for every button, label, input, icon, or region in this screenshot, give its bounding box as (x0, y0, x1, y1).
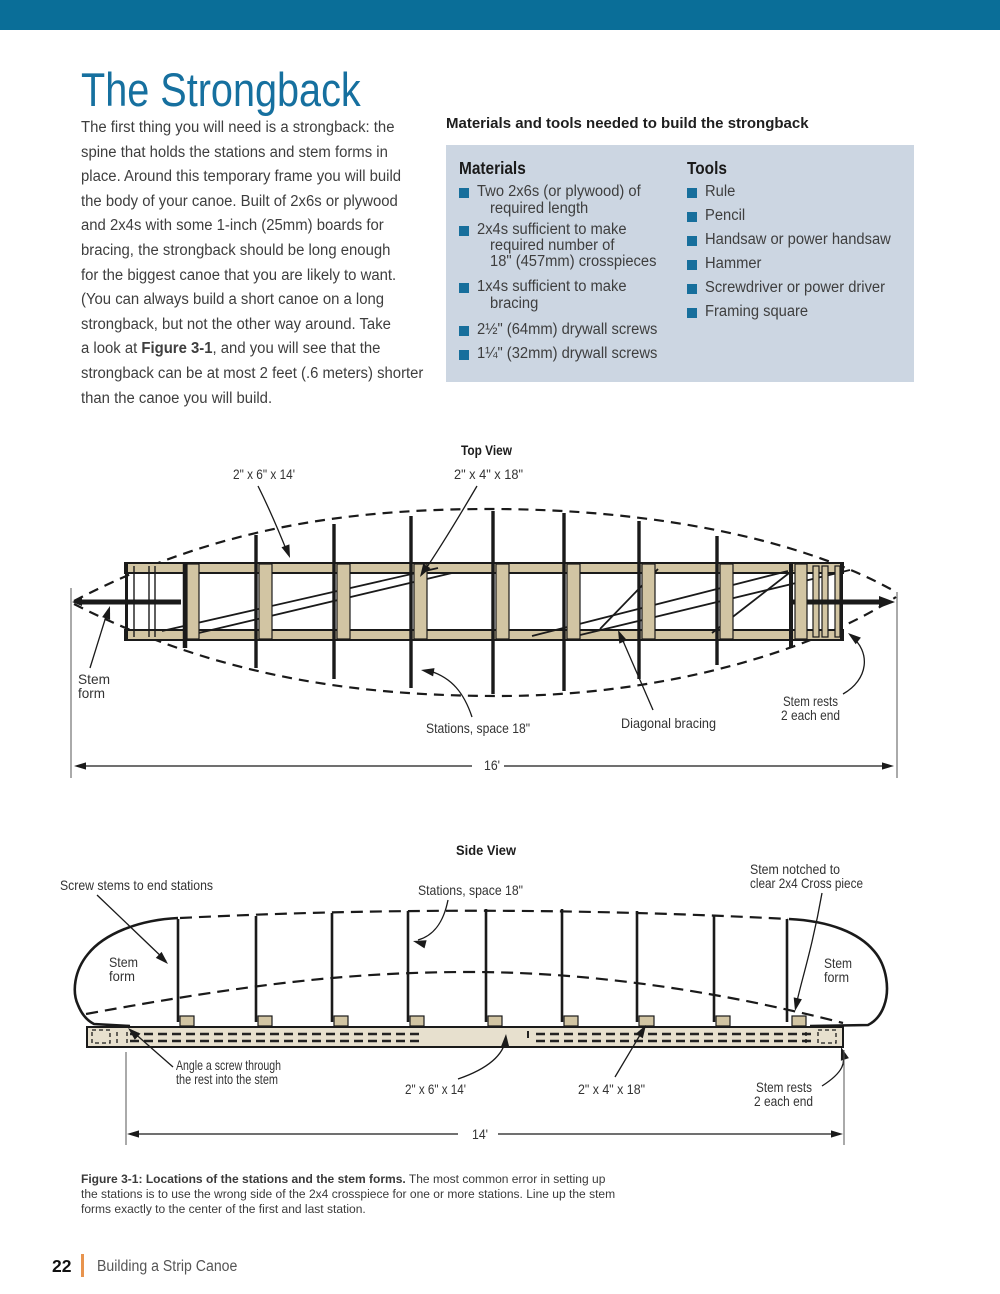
svg-text:form: form (109, 968, 135, 984)
svg-text:Top View: Top View (461, 442, 512, 458)
svg-text:clear 2x4 Cross piece: clear 2x4 Cross piece (750, 875, 863, 891)
svg-text:2 each end: 2 each end (754, 1093, 813, 1109)
svg-text:Diagonal bracing: Diagonal bracing (621, 715, 716, 731)
svg-text:Side View: Side View (456, 842, 516, 858)
svg-text:2" x 6" x 14': 2" x 6" x 14' (233, 466, 295, 482)
svg-text:2" x 4" x 18": 2" x 4" x 18" (578, 1081, 645, 1097)
svg-text:the rest into the stem: the rest into the stem (176, 1071, 278, 1087)
svg-text:Stations, space 18": Stations, space 18" (426, 720, 530, 736)
svg-text:form: form (824, 969, 849, 985)
svg-text:form: form (78, 685, 105, 701)
svg-text:16': 16' (484, 757, 500, 773)
svg-text:Stations, space 18": Stations, space 18" (418, 882, 523, 898)
svg-text:2" x 6" x 14': 2" x 6" x 14' (405, 1081, 466, 1097)
svg-text:2 each end: 2 each end (781, 707, 840, 723)
svg-text:Screw stems to end stations: Screw stems to end stations (60, 877, 213, 893)
svg-text:2" x 4" x 18": 2" x 4" x 18" (454, 466, 523, 482)
svg-text:14': 14' (472, 1126, 488, 1142)
